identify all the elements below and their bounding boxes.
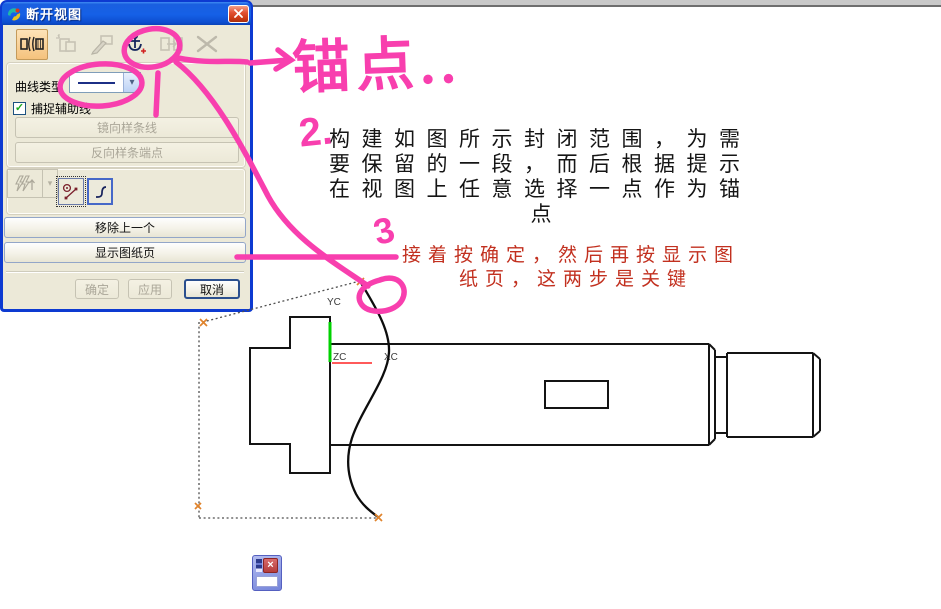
zc-label: ZC: [333, 352, 346, 363]
break-line-tools-group: ▾: [6, 168, 246, 215]
threaded-end: [727, 353, 820, 437]
dialog-title: 断开视图: [26, 4, 228, 23]
curve-type-dropdown[interactable]: ▾: [69, 72, 141, 93]
instruction-note-red: 接着按确定，然后再按显示图 纸页，这两步是关键: [402, 244, 750, 292]
canvas-top-edge: [246, 0, 941, 7]
handwritten-anchor-label: 锚点..: [291, 15, 463, 105]
keyway-rect: [545, 381, 608, 408]
dialog-toolbar: [16, 27, 223, 61]
shaft-body: [330, 344, 709, 445]
flange-profile: [250, 317, 330, 473]
cancel-button[interactable]: 取消: [184, 279, 240, 299]
dialog-separator: [6, 271, 244, 273]
dialog-titlebar[interactable]: 断开视图: [2, 2, 251, 25]
curve-type-label: 曲线类型: [15, 78, 63, 95]
icon-label-strip: [256, 576, 278, 587]
chevron-down-icon: ▾: [42, 170, 57, 197]
remove-last-button[interactable]: 移除上一个: [4, 217, 246, 238]
note-line: 在视图上任意选择一点作为锚: [329, 177, 753, 202]
x-marker: [375, 514, 382, 521]
break-view-dialog: 断开视图: [0, 0, 253, 312]
lightning-icon: [8, 170, 42, 197]
chevron-down-icon[interactable]: ▾: [123, 73, 140, 92]
delete-break-icon[interactable]: [191, 29, 223, 60]
note-line: 纸页，这两步是关键: [402, 268, 750, 292]
selection-boundary-dotted: [199, 281, 378, 518]
swap-break-icon[interactable]: [156, 29, 188, 60]
note-line: 构建如图所示封闭范围，为需: [329, 127, 753, 152]
apply-button[interactable]: 应用: [128, 279, 172, 299]
app-logo-icon: [6, 6, 22, 22]
reverse-spline-endpoint-button[interactable]: 反向样条端点: [15, 142, 239, 163]
shaft-drawing: [250, 317, 820, 473]
associativity-dropdown[interactable]: ▾: [7, 169, 58, 198]
close-icon[interactable]: [228, 5, 249, 23]
circle-around-anchor-point: [359, 278, 404, 311]
anchor-point-icon[interactable]: [121, 29, 153, 60]
point-markers: [195, 278, 382, 521]
snap-helper-row: ✓ 捕捉辅助线: [13, 100, 91, 117]
add-break-region-icon[interactable]: [51, 29, 83, 60]
edit-break-line-icon[interactable]: [86, 29, 118, 60]
x-marker: [200, 319, 207, 326]
break-view-icon[interactable]: [16, 29, 48, 60]
arrow-to-anchor-text: [250, 50, 291, 69]
shaft-end-chamfer: [709, 344, 715, 445]
curve-type-group: 曲线类型 ▾ ✓ 捕捉辅助线 镜向样条线 反向样条端点: [6, 62, 246, 168]
yc-label: YC: [327, 297, 341, 308]
red-x-badge: ×: [263, 558, 278, 573]
mirror-spline-button[interactable]: 镜向样条线: [15, 117, 239, 138]
image-glyph: [256, 559, 262, 572]
note-line: 接着按确定，然后再按显示图: [402, 244, 750, 268]
x-marker: [357, 278, 364, 285]
solid-line-swatch: [70, 73, 123, 92]
xc-label: XC: [384, 352, 398, 363]
handwritten-step2-marker: 2.: [297, 108, 335, 156]
snap-helper-checkbox[interactable]: ✓: [13, 102, 26, 115]
shaft-neck: [715, 357, 727, 433]
x-marker: [195, 503, 201, 509]
snap-helper-label: 捕捉辅助线: [31, 100, 91, 117]
broken-image-icon[interactable]: ×: [252, 555, 282, 591]
ok-button[interactable]: 确定: [75, 279, 119, 299]
show-drawing-sheet-button[interactable]: 显示图纸页: [4, 242, 246, 263]
spline-curve-icon[interactable]: [87, 178, 113, 205]
polyline-points-icon[interactable]: [58, 178, 84, 205]
coordinate-triad: YC ZC XC: [327, 297, 398, 363]
instruction-note-black: 构建如图所示封闭范围，为需 要保留的一段，而后根据提示 在视图上任意选择一点作为…: [329, 127, 753, 227]
note-line: 要保留的一段，而后根据提示: [329, 152, 753, 177]
break-spline-curve[interactable]: [348, 281, 389, 517]
